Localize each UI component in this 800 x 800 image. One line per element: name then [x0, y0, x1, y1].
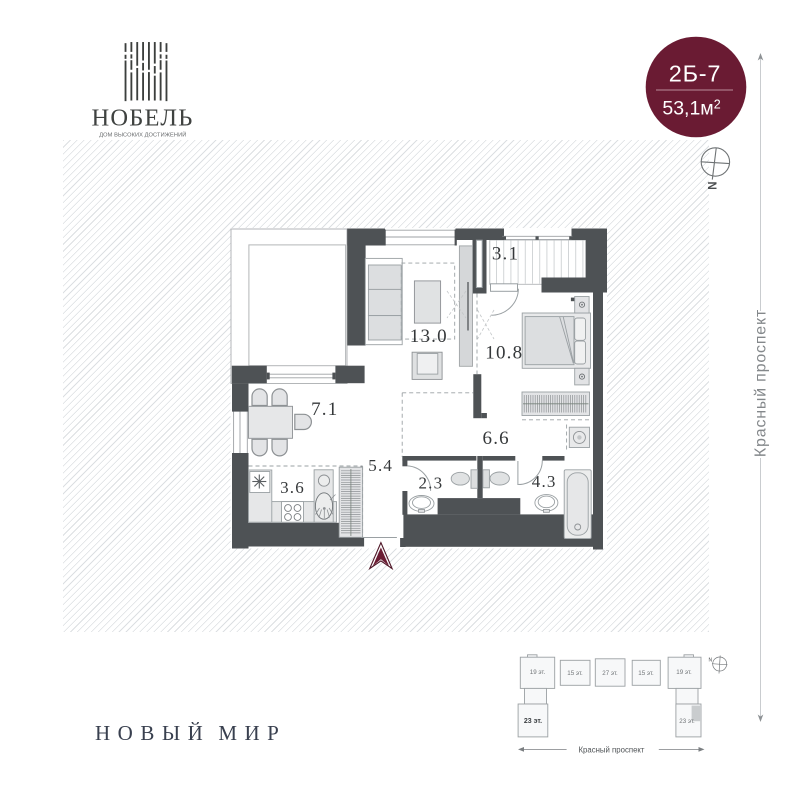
svg-text:Красный проспект: Красный проспект: [753, 309, 770, 457]
svg-text:4.3: 4.3: [532, 472, 557, 491]
svg-text:НОБЕЛЬ: НОБЕЛЬ: [92, 105, 194, 132]
svg-text:2.3: 2.3: [418, 474, 443, 493]
svg-text:НОВЫЙМИР: НОВЫЙМИР: [95, 721, 286, 745]
svg-text:15 эт.: 15 эт.: [638, 670, 654, 677]
svg-text:7.1: 7.1: [311, 399, 338, 420]
svg-text:6.6: 6.6: [483, 428, 510, 449]
svg-text:15 эт.: 15 эт.: [567, 670, 583, 677]
svg-text:Красный проспект: Красный проспект: [579, 745, 645, 754]
svg-text:3.1: 3.1: [492, 243, 519, 264]
svg-text:27 эт.: 27 эт.: [602, 670, 618, 677]
svg-text:13.0: 13.0: [410, 326, 448, 347]
svg-text:23 эт.: 23 эт.: [679, 718, 695, 725]
svg-text:2Б-7: 2Б-7: [669, 61, 722, 87]
svg-text:19 эт.: 19 эт.: [530, 669, 546, 676]
svg-text:23 эт.: 23 эт.: [524, 718, 542, 725]
svg-text:N: N: [705, 182, 717, 190]
svg-text:3.6: 3.6: [280, 478, 305, 497]
svg-text:53,1м2: 53,1м2: [662, 98, 720, 120]
svg-text:19 эт.: 19 эт.: [676, 669, 692, 676]
svg-text:10.8: 10.8: [485, 342, 523, 363]
svg-text:5.4: 5.4: [368, 456, 393, 475]
svg-text:ДОМ ВЫСОКИХ ДОСТИЖЕНИЙ: ДОМ ВЫСОКИХ ДОСТИЖЕНИЙ: [99, 130, 186, 138]
svg-text:N: N: [709, 658, 713, 664]
